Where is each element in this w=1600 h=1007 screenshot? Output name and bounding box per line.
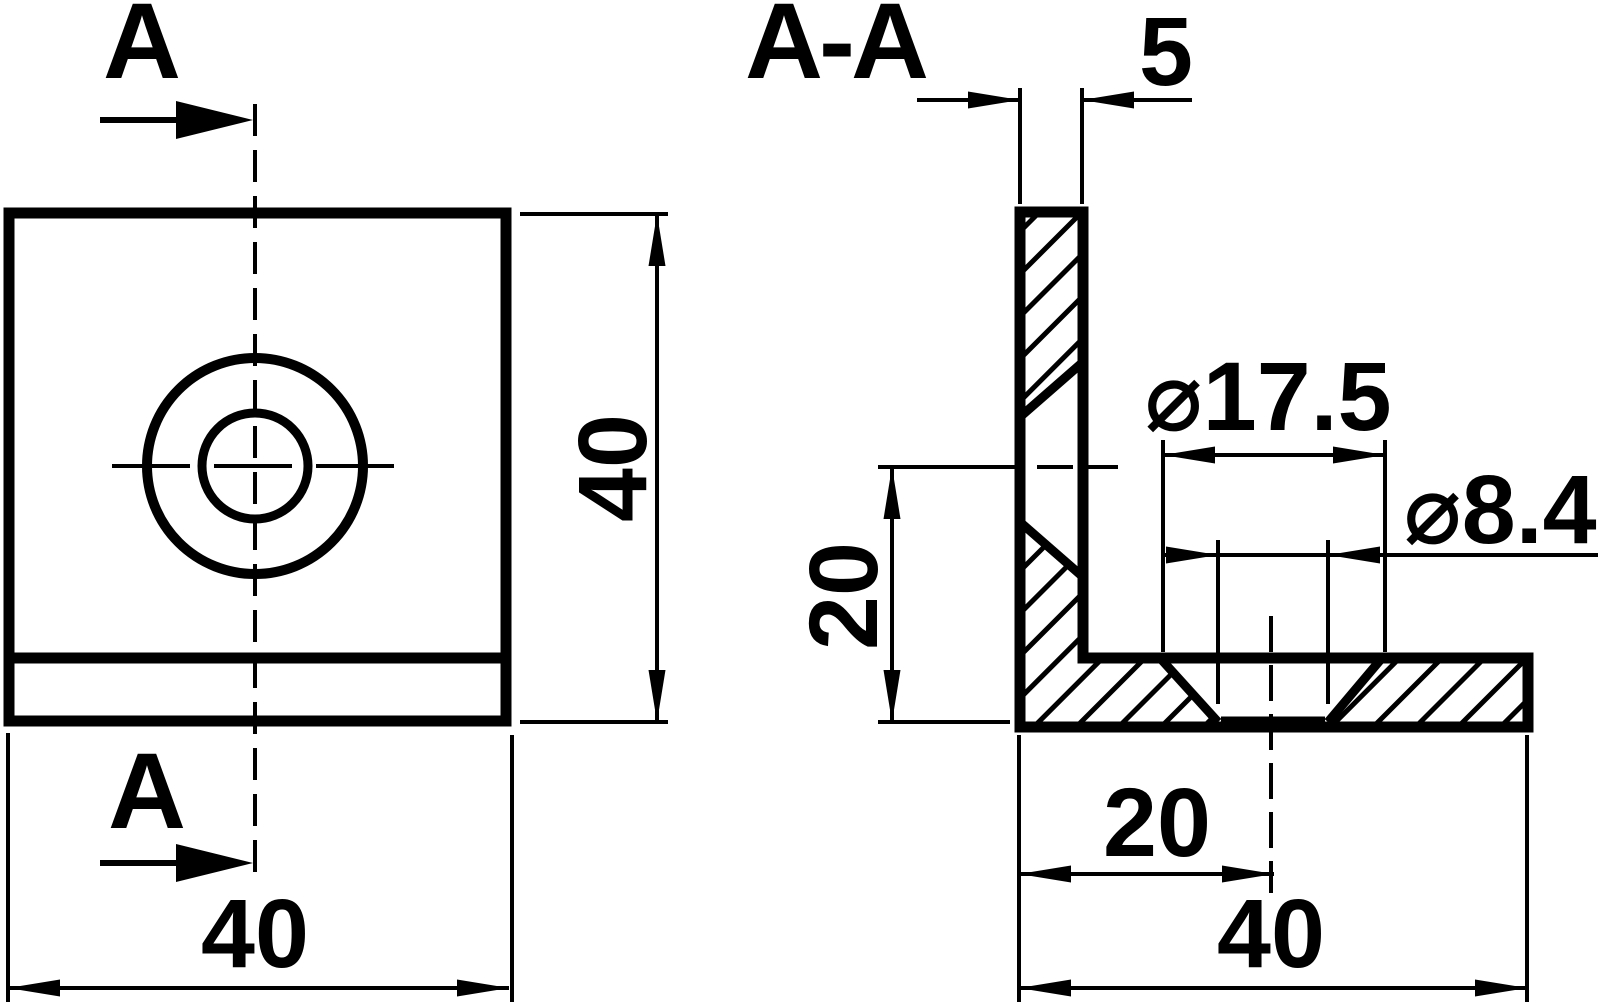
section-cut-arrow-top: A	[100, 0, 253, 139]
dim-arrow-icon	[8, 980, 60, 997]
dim-arrow-icon	[1328, 547, 1380, 564]
technical-drawing-canvas: A A 40 40 A-A	[0, 0, 1600, 1007]
section-title: A-A	[745, 0, 927, 101]
dim-value: 20	[1103, 768, 1211, 877]
section-cut-arrow-bottom: A	[100, 730, 253, 882]
dim-section-thickness: 5	[917, 0, 1193, 204]
dim-arrow-icon	[884, 670, 901, 722]
section-view: A-A 5	[745, 0, 1598, 1002]
front-view: A A 40 40	[4, 0, 668, 1002]
dim-value: 5	[1139, 0, 1193, 106]
dim-hole-height: 20	[789, 467, 1010, 722]
dim-arrow-icon	[1019, 980, 1071, 997]
dim-arrow-icon	[1166, 547, 1218, 564]
dim-arrow-icon	[1475, 980, 1527, 997]
dim-value: ⌀8.4	[1403, 455, 1596, 564]
dim-arrow-icon	[457, 980, 509, 997]
dim-countersink-dia: ⌀17.5	[1144, 342, 1391, 652]
dim-arrow-icon	[884, 467, 901, 519]
dim-front-height: 40	[520, 214, 668, 722]
section-label-bottom: A	[108, 730, 184, 851]
dim-value: 20	[789, 542, 898, 650]
dim-value: ⌀17.5	[1144, 342, 1391, 451]
section-arrow-head-icon	[176, 101, 253, 139]
dim-value: 40	[1217, 879, 1325, 988]
dim-arrow-icon	[649, 214, 666, 266]
angle-bracket-drawing: A A 40 40 A-A	[0, 0, 1600, 1007]
section-arrow-head-icon	[176, 844, 253, 882]
section-label-top: A	[103, 0, 179, 101]
dim-arrow-icon	[649, 670, 666, 722]
dim-front-width: 40	[8, 733, 512, 1002]
dim-value: 40	[201, 879, 309, 988]
dim-arrow-icon	[968, 92, 1020, 109]
dim-hole-offset: 20	[1019, 768, 1274, 883]
dim-arrow-icon	[1082, 92, 1134, 109]
dim-value: 40	[558, 414, 667, 522]
dim-arrow-icon	[1019, 866, 1071, 883]
